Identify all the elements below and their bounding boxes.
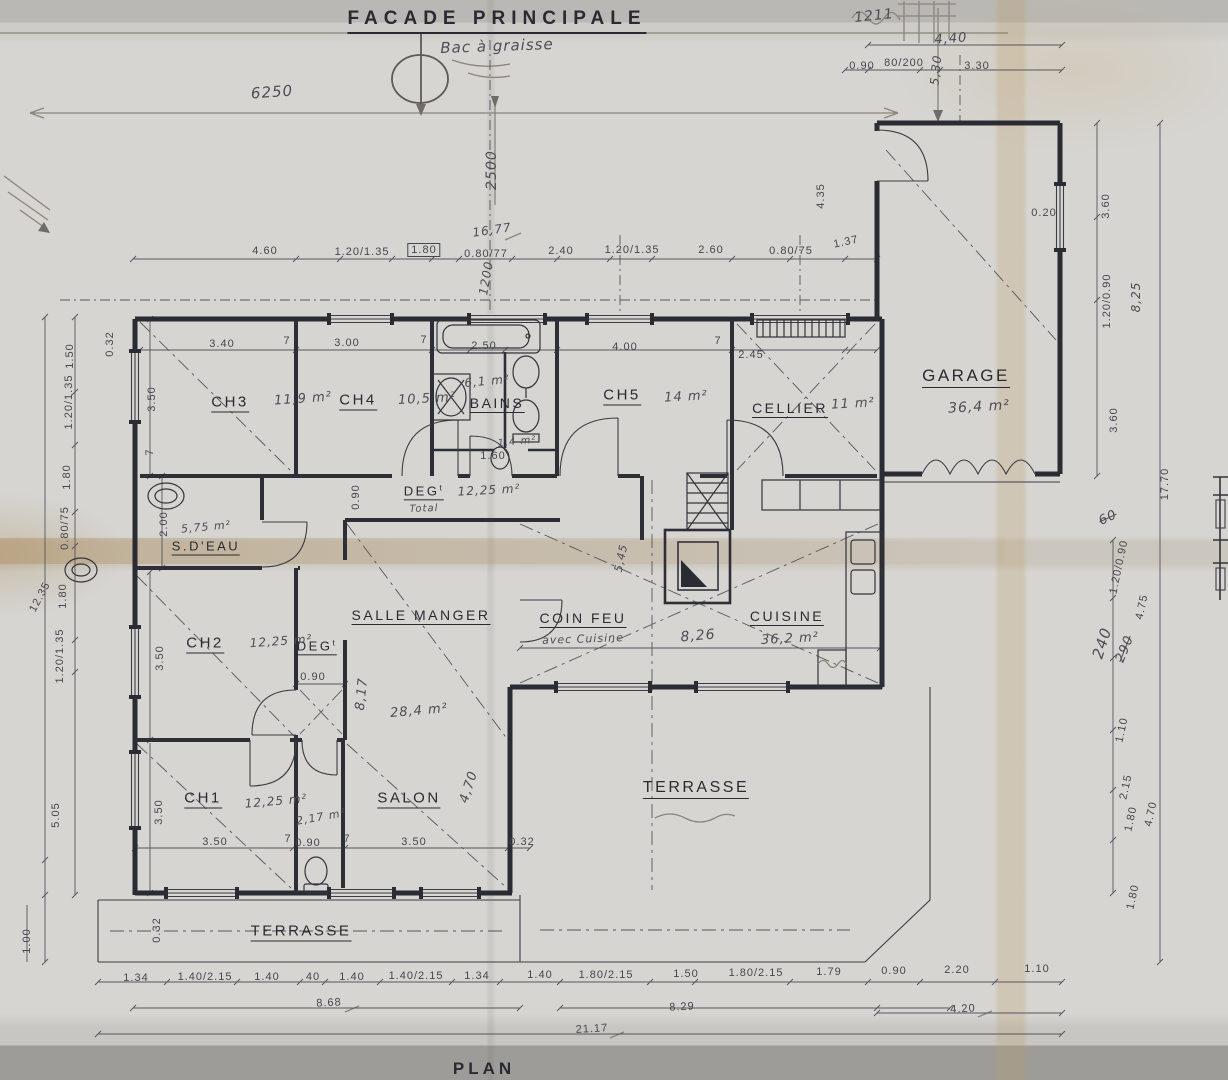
dimension-label: 1.20/0.90 [1101, 274, 1113, 329]
dimension-label: 3.00 [334, 337, 359, 349]
dimension-label: 1.80 [1122, 805, 1139, 832]
handwritten-note: 28,4 m² [389, 701, 448, 721]
handwritten-note: 1211 [853, 6, 894, 26]
drawing-title: FACADE PRINCIPALE [347, 8, 646, 34]
handwritten-note: 5,45 [612, 543, 631, 574]
handwritten-note: 11 m² [831, 395, 875, 412]
dimension-label: 40 [306, 971, 320, 983]
dimension-label: 7 [420, 334, 427, 346]
dimension-label: 3.40 [209, 338, 234, 350]
handwritten-note: 4,70 [457, 769, 481, 805]
dimension-label: 0.90 [849, 60, 874, 72]
dimension-label: 7 [144, 448, 156, 455]
handwritten-note: 60 [1096, 507, 1119, 528]
dimension-label: 0.80/75 [59, 506, 71, 550]
dimension-label: 7 [283, 335, 290, 347]
dimension-label: 3.50 [154, 645, 166, 670]
room-label: CH5 [603, 387, 641, 406]
dimension-label: 0.90 [350, 484, 362, 509]
handwritten-note: 6,1 m² [464, 372, 510, 390]
dimension-label: 1.37 [832, 233, 859, 250]
room-label: BAINS [470, 395, 525, 413]
dimension-label: 1.20/0.90 [1107, 539, 1130, 595]
dimension-label: 7 [284, 833, 291, 845]
handwritten-note: 12,25 m² [457, 481, 520, 498]
dimension-label: 1.40 [254, 971, 279, 983]
dimension-label: 0.90 [295, 837, 320, 849]
room-label: TERRASSE [251, 923, 352, 942]
dimension-label: 0.32 [151, 917, 163, 942]
dimension-label: 1.79 [816, 966, 841, 978]
labels-layer: FACADE PRINCIPALE PLAN CH3CH4BAINSCH5CEL… [0, 0, 1228, 1080]
dimension-label: 1.20/1.35 [63, 375, 75, 430]
handwritten-note: 5,75 m² [180, 518, 231, 535]
room-label: CH3 [211, 394, 249, 413]
dimension-label: 0.20 [1031, 207, 1056, 219]
handwritten-note: 5,30 [927, 54, 944, 86]
handwritten-note: 36,2 m² [761, 630, 820, 648]
room-label: CH4 [339, 392, 377, 411]
plan-title: PLAN [453, 1059, 515, 1080]
handwritten-note: Total [409, 503, 438, 515]
dimension-label: 7 [343, 833, 350, 845]
dimension-label: 1.60 [480, 450, 505, 462]
dimension-label: 80/200 [884, 57, 924, 69]
dimension-label: 2.50 [471, 340, 496, 352]
dimension-label: 0.80/75 [769, 245, 813, 257]
handwritten-note: 290 [1113, 633, 1137, 664]
dimension-label: 3.50 [146, 386, 158, 411]
room-label: COIN FEU [540, 610, 627, 628]
dimension-label: 0.32 [509, 836, 534, 848]
dimension-label: 3.60 [1100, 193, 1112, 218]
blueprint-paper: FACADE PRINCIPALE PLAN CH3CH4BAINSCH5CEL… [0, 0, 1228, 1080]
dimension-label: 1.40/2.15 [178, 971, 233, 983]
dimension-label: 1.20/1.35 [605, 244, 660, 256]
dimension-label: 1.50 [64, 343, 76, 368]
dimension-label: 0.90 [300, 671, 325, 683]
dimension-label: 3.50 [153, 799, 165, 824]
dimension-label: 21.17 [575, 1022, 608, 1036]
handwritten-note: 2500 [484, 150, 500, 190]
room-label: SALON [377, 790, 440, 809]
room-label: CH1 [184, 790, 222, 809]
dimension-label: 1.80/2.15 [729, 967, 784, 979]
dimension-label: 1.80 [1124, 883, 1141, 910]
dimension-label: 1.34 [464, 970, 489, 982]
room-label: S.D'EAU [172, 539, 240, 556]
dimension-label: 4.35 [815, 183, 827, 208]
dimension-label: 1.00 [21, 928, 33, 953]
room-label: GARAGE [922, 366, 1010, 388]
dimension-label: 1.40 [527, 969, 552, 981]
dimension-label: 1.80 [61, 464, 73, 489]
handwritten-note: 8,17 [353, 677, 371, 711]
handwritten-note: Bac à graisse [440, 35, 554, 57]
dimension-label: 1.50 [673, 968, 698, 980]
dimension-label: 4.60 [252, 245, 277, 257]
dimension-label: 3.50 [202, 836, 227, 848]
dimension-label: 1.80 [57, 583, 69, 608]
room-label: TERRASSE [643, 779, 749, 799]
handwritten-note: 240 [1089, 625, 1116, 661]
handwritten-note: 10,5 m² [398, 390, 457, 408]
dimension-label: 0.90 [881, 965, 906, 977]
room-label: CELLIER [752, 400, 828, 418]
room-label: DEGt [404, 483, 444, 500]
room-label: SALLE MANGER [352, 607, 491, 625]
handwritten-note: 12,25 m² [244, 791, 308, 810]
dimension-label: 17.70 [1159, 468, 1171, 501]
handwritten-note: avec Cuisine [542, 631, 624, 647]
dimension-label: 2.45 [738, 349, 763, 361]
dimension-label: 1.10 [1113, 716, 1130, 743]
dimension-label: 1.20/1.35 [54, 629, 66, 684]
handwritten-note: 14 m² [664, 388, 708, 405]
dimension-label: 3.50 [401, 836, 426, 848]
handwritten-note: 11,9 m² [274, 389, 333, 408]
dimension-label: 1.40 [339, 971, 364, 983]
dimension-label: 2.40 [548, 245, 573, 257]
dimension-label: 4.70 [1142, 800, 1159, 827]
dimension-label: 2.00 [158, 511, 170, 536]
handwritten-note: 8,25 [1129, 282, 1143, 313]
dimension-label: 1.10 [1024, 963, 1049, 975]
room-label: CUISINE [750, 608, 824, 626]
dimension-label: 1.80/2.15 [579, 969, 634, 981]
dimension-label: 1.34 [123, 972, 148, 984]
handwritten-note: 1200 [476, 260, 496, 296]
dimension-label: 1.80 [407, 243, 440, 257]
dimension-label: 12.35 [27, 580, 53, 614]
dimension-label: 1.20/1.35 [335, 246, 390, 258]
room-label: CH2 [186, 635, 224, 654]
dimension-label: 8.68 [316, 996, 342, 1009]
handwritten-note: 36,4 m² [948, 397, 1011, 416]
dimension-label: 2.60 [698, 244, 723, 256]
handwritten-note: 2,17 m² [295, 806, 347, 828]
dimension-label: 4.75 [1133, 593, 1150, 620]
dimension-label: 2.15 [1117, 773, 1134, 800]
dimension-label: 4.00 [612, 341, 637, 353]
dimension-label: 1.40/2.15 [389, 970, 444, 982]
handwritten-note: 4,40 [934, 30, 968, 47]
dimension-label: 8.29 [669, 1000, 695, 1013]
handwritten-note: 8,26 [680, 626, 716, 645]
dimension-label: 3.30 [964, 60, 989, 72]
handwritten-note: 1,4 m² [497, 435, 537, 450]
dimension-label: 3.60 [1108, 407, 1120, 432]
dimension-label: 4.20 [950, 1002, 976, 1015]
dimension-label: 7 [714, 335, 721, 347]
handwritten-note: 6250 [250, 82, 293, 103]
dimension-label: 5.05 [50, 802, 62, 827]
dimension-label: 2.20 [944, 964, 969, 976]
dimension-label: 0.32 [104, 331, 116, 356]
handwritten-note: 16,77 [472, 220, 513, 239]
dimension-label: 0.80/77 [464, 248, 508, 260]
